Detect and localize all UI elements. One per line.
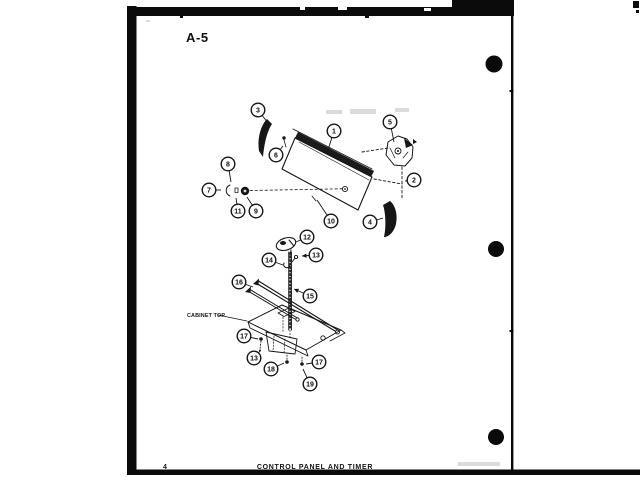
screw [259,337,263,341]
callout-number: 2 [412,178,416,185]
noise-smudge [458,462,500,466]
right-end-cap [383,201,397,237]
panel-screw [282,136,286,147]
callout-9: 9 [247,197,263,218]
noise-smudge [350,109,376,114]
scanned-manual-page: A-5 [0,0,640,480]
callout-number: 9 [254,209,258,216]
edge-speck [510,330,514,332]
callout-10: 10 [317,200,338,228]
scan-noise [146,20,500,466]
top-right-edge-chunk [452,0,514,14]
callout-2: 2 [405,173,421,187]
ink-drip [365,16,369,18]
noise-smudge [146,20,150,22]
callout-number: 18 [267,367,275,374]
callout-15: 15 [294,289,317,303]
callout-number: 13 [312,253,320,260]
noise-smudge [395,108,409,112]
torn-nick [338,6,347,10]
callout-number: 15 [306,294,314,301]
callout-number: 4 [368,220,372,227]
timer-assembly [386,136,417,166]
footer-title: CONTROL PANEL AND TIMER [257,464,373,471]
callout-number: 17 [315,360,323,367]
callout-4: 4 [363,215,383,229]
ink-drip [180,16,183,18]
corner-speck [636,10,639,13]
callout-17: 17 [237,329,258,343]
callout-7: 7 [202,183,221,197]
control-panel [282,129,374,210]
callout-number: 7 [207,188,211,195]
timer-shaft [289,252,292,330]
callout-8: 8 [221,157,235,182]
callout-19: 19 [303,369,317,391]
callout-number: 12 [303,235,311,242]
callout-13: 13 [302,248,323,262]
panel-top-strip [295,132,374,177]
binder-holes [486,56,505,446]
cabinet-top [248,305,345,356]
mounting-bracket [259,332,304,366]
timer-dial [275,235,298,253]
callout-12: 12 [296,230,314,244]
callout-3: 3 [251,103,268,123]
screw [300,362,304,366]
callout-number: 1 [332,129,336,136]
screw [285,360,289,364]
callout-number: 17 [240,334,248,341]
callout-11: 11 [231,198,245,218]
callout-number: 11 [234,209,242,216]
cabinet-top-label: CABINET TOP [187,313,225,319]
right-edge-line [511,12,513,470]
torn-nick [424,8,431,11]
noise-smudge [326,110,342,114]
linkage-rods [245,279,340,335]
callout-number: 6 [274,153,278,160]
callout-16: 16 [232,275,253,289]
left-edge-bar [127,6,137,472]
callout-number: 8 [226,162,230,169]
scan-edges [127,0,640,475]
callout-number: 19 [306,382,314,389]
callout-number: 5 [388,120,392,127]
callout-13: 13 [247,351,261,365]
torn-nick [300,7,305,10]
callout-6: 6 [269,146,283,162]
page-number: 4 [163,464,167,471]
callout-18: 18 [264,362,284,376]
callout-17: 17 [306,355,326,369]
page-canvas: A-5 [0,0,640,480]
edge-speck [510,90,514,92]
knob-group [226,185,342,196]
binder-hole [488,429,504,445]
callout-number: 16 [235,280,243,287]
binder-hole [488,241,504,257]
page-title: A-5 [186,30,209,45]
callout-number: 13 [250,356,258,363]
binder-hole [486,56,503,73]
callout-number: 10 [327,219,335,226]
callout-number: 3 [256,108,260,115]
cabinet-top-label-group: CABINET TOP [187,313,247,321]
corner-speck [633,1,639,8]
callout-number: 14 [265,258,273,265]
bottom-edge-bar [127,470,640,476]
callout-14: 14 [262,253,283,267]
